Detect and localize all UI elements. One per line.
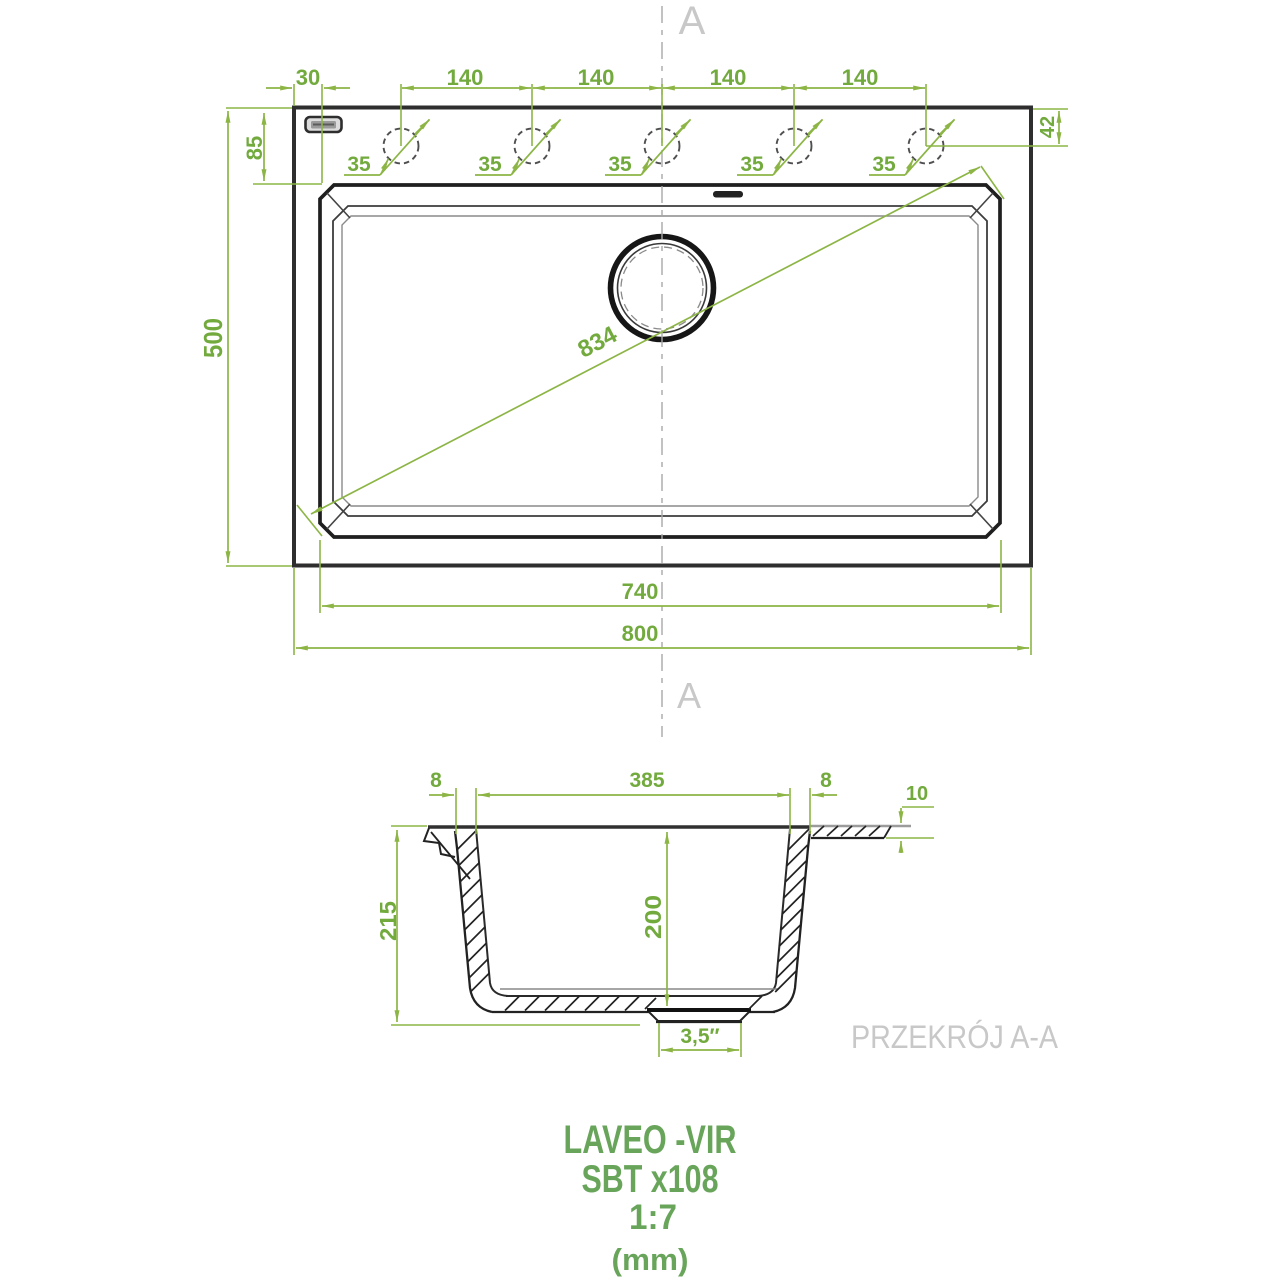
svg-text:42: 42 (1037, 116, 1059, 138)
svg-text:200: 200 (640, 895, 666, 939)
svg-text:85: 85 (242, 136, 267, 160)
svg-text:500: 500 (198, 318, 228, 358)
svg-text:8: 8 (820, 769, 832, 792)
svg-text:800: 800 (622, 621, 659, 646)
svg-text:A: A (679, 0, 706, 43)
svg-text:140: 140 (710, 65, 747, 90)
svg-text:35: 35 (608, 153, 632, 176)
svg-text:215: 215 (375, 901, 401, 941)
svg-text:(mm): (mm) (612, 1242, 689, 1277)
svg-text:SBT x108: SBT x108 (582, 1158, 719, 1201)
svg-text:30: 30 (296, 65, 320, 90)
svg-text:140: 140 (447, 65, 484, 90)
svg-text:35: 35 (347, 153, 371, 176)
svg-text:140: 140 (842, 65, 879, 90)
svg-text:35: 35 (478, 153, 502, 176)
svg-text:1:7: 1:7 (629, 1198, 677, 1237)
svg-text:385: 385 (629, 769, 664, 792)
svg-text:LAVEO -VIR: LAVEO -VIR (564, 1118, 737, 1162)
svg-text:35: 35 (872, 153, 896, 176)
svg-text:740: 740 (622, 579, 659, 604)
svg-text:140: 140 (578, 65, 615, 90)
svg-text:3,5″: 3,5″ (680, 1025, 719, 1048)
svg-text:35: 35 (740, 153, 764, 176)
svg-text:A: A (677, 675, 701, 716)
svg-text:10: 10 (906, 783, 928, 805)
svg-text:PRZEKRÓJ A-A: PRZEKRÓJ A-A (851, 1019, 1059, 1055)
svg-text:8: 8 (430, 769, 442, 792)
